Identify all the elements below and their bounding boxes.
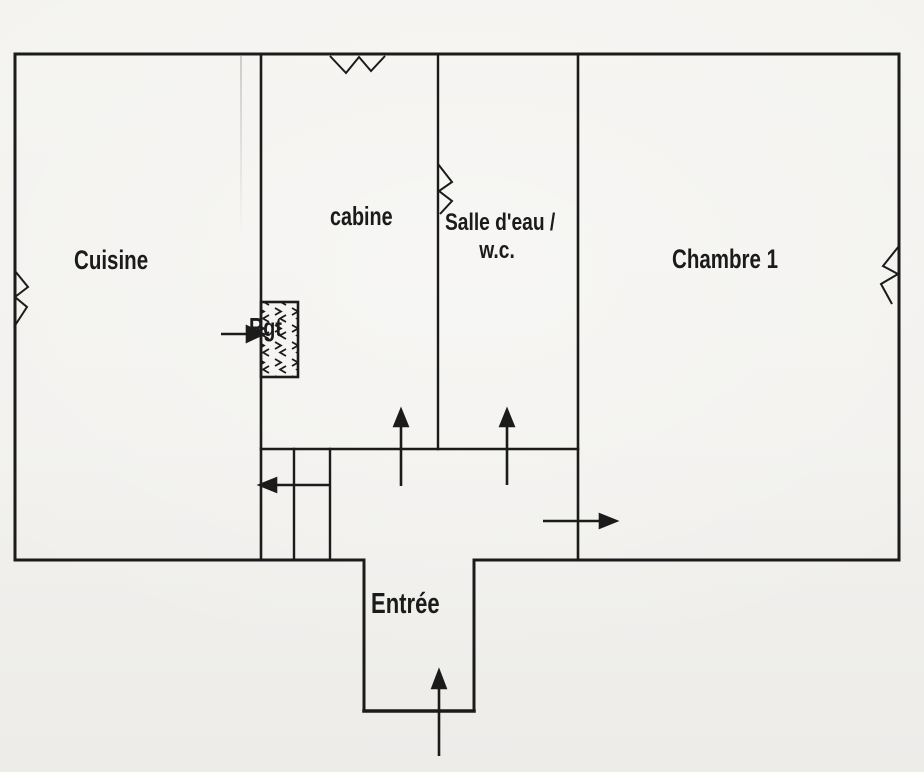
room-label-entree: Entrée [371,589,440,619]
scanned-floor-plan-page: Cuisine cabine Salle d'eau / w.c. Chambr… [0,0,924,772]
room-label-salle-deau-line2: w.c. [445,237,549,265]
hall-to-chambre-arrow-icon [543,515,616,528]
direction-arrows [221,327,616,757]
outer-walls [15,54,899,711]
room-label-rangement: Rgt [249,314,282,341]
room-label-cuisine: Cuisine [74,246,148,274]
window-marks [14,56,899,327]
right-wall-window-icon [881,246,899,304]
floor-plan-drawing [0,0,924,772]
room-label-chambre-1: Chambre 1 [672,245,778,273]
paper-crease [240,56,242,236]
room-label-cabine: cabine [330,203,393,230]
top-wall-window-icon [330,56,385,73]
hall-to-salle-deau-arrow-icon [501,410,514,485]
room-label-salle-deau-wc: Salle d'eau / w.c. [445,209,549,265]
room-label-salle-deau-line1: Salle d'eau / [445,209,549,237]
entry-arrow-icon [433,671,446,756]
salle-deau-wall-window-icon [438,164,452,214]
